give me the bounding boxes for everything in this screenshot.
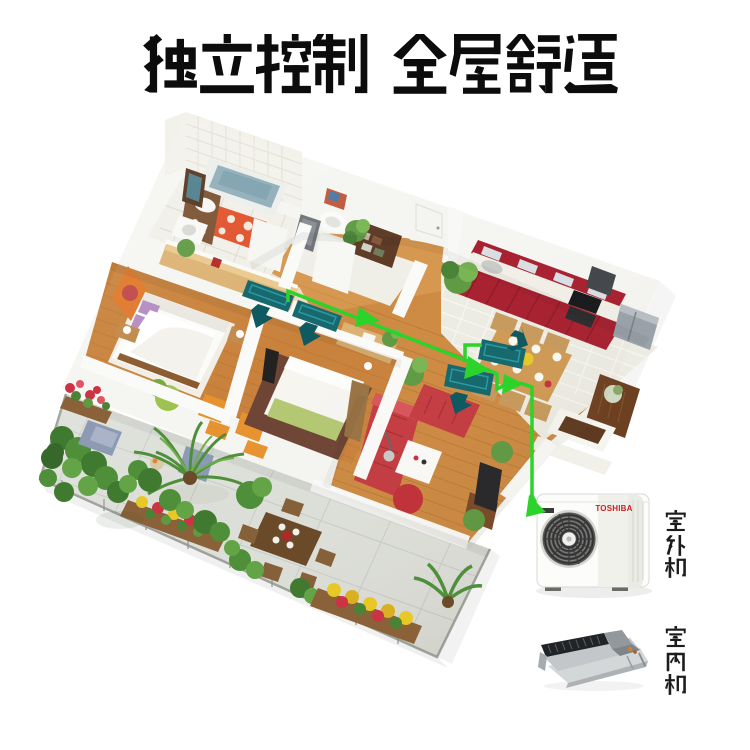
svg-text:TOSHIBA: TOSHIBA: [595, 504, 632, 513]
